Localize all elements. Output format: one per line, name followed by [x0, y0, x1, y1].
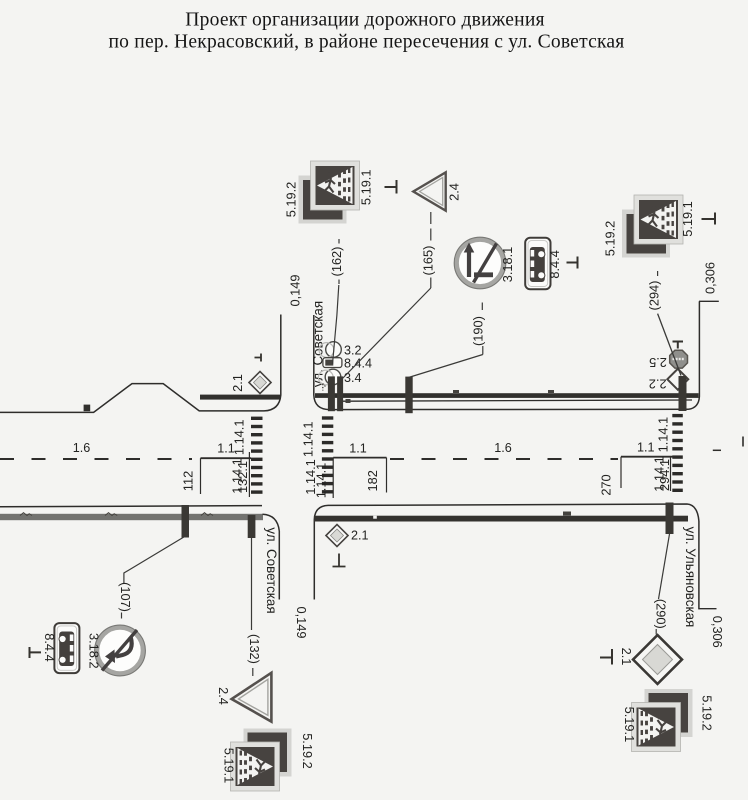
- svg-text:1.6: 1.6: [73, 441, 91, 455]
- svg-text:1.14.1: 1.14.1: [232, 420, 247, 456]
- svg-text:5.19.1: 5.19.1: [622, 707, 637, 743]
- svg-text:5.19.2: 5.19.2: [700, 695, 715, 731]
- svg-text:5.19.2: 5.19.2: [300, 733, 315, 769]
- svg-text:5.19.1: 5.19.1: [221, 748, 236, 784]
- svg-text:3.2: 3.2: [344, 344, 362, 358]
- svg-text:2.4: 2.4: [447, 183, 462, 201]
- svg-text:1.14.1: 1.14.1: [300, 422, 315, 458]
- svg-text:112: 112: [181, 471, 196, 491]
- svg-text:1.1: 1.1: [637, 441, 655, 455]
- svg-text:270: 270: [598, 474, 613, 495]
- svg-text:182: 182: [365, 470, 380, 491]
- svg-text:1.6: 1.6: [494, 441, 512, 455]
- svg-text:5.19.1: 5.19.1: [359, 170, 374, 206]
- svg-text:5.19.1: 5.19.1: [680, 201, 695, 237]
- svg-text:(107): (107): [118, 582, 133, 612]
- svg-text:3.18.1: 3.18.1: [500, 247, 515, 283]
- svg-text:2.5: 2.5: [649, 355, 667, 370]
- svg-text:2.1: 2.1: [351, 529, 369, 543]
- svg-text:2.2: 2.2: [649, 377, 667, 392]
- svg-text:(162): (162): [329, 247, 344, 277]
- svg-text:8.4.4: 8.4.4: [547, 250, 562, 278]
- svg-text:0,306: 0,306: [703, 262, 718, 294]
- svg-text:8.4.4: 8.4.4: [42, 633, 57, 661]
- svg-text:0,306: 0,306: [710, 616, 725, 648]
- svg-text:5.19.2: 5.19.2: [284, 182, 299, 218]
- svg-text:(294): (294): [647, 281, 662, 311]
- svg-text:1.14.1: 1.14.1: [313, 463, 328, 499]
- svg-text:Проект организации дорожного д: Проект организации дорожного движения: [185, 10, 545, 31]
- svg-text:0,149: 0,149: [294, 606, 309, 638]
- svg-text:2.1: 2.1: [230, 374, 245, 392]
- svg-text:3.18.2: 3.18.2: [87, 633, 102, 669]
- svg-text:1.1: 1.1: [349, 442, 367, 456]
- svg-text:(132): (132): [247, 634, 262, 664]
- svg-text:8.4.4: 8.4.4: [344, 357, 372, 371]
- svg-text:по пер. Некрасовский, в районе: по пер. Некрасовский, в районе пересечен…: [108, 32, 624, 53]
- svg-text:5.19.2: 5.19.2: [603, 221, 618, 257]
- svg-text:3.4: 3.4: [344, 371, 362, 385]
- svg-text:132.1: 132.1: [235, 461, 250, 493]
- svg-text:0,149: 0,149: [288, 274, 303, 306]
- svg-text:2.4: 2.4: [216, 687, 231, 705]
- svg-text:(190): (190): [471, 316, 486, 346]
- svg-text:294.1: 294.1: [657, 459, 672, 491]
- svg-text:(290): (290): [653, 599, 668, 629]
- svg-text:2.1: 2.1: [619, 648, 634, 666]
- svg-text:ул. Ульяновская: ул. Ульяновская: [683, 527, 698, 628]
- svg-text:1.14.1: 1.14.1: [656, 417, 671, 453]
- svg-text:(165): (165): [421, 246, 436, 276]
- svg-text:ул. Советская: ул. Советская: [264, 527, 279, 613]
